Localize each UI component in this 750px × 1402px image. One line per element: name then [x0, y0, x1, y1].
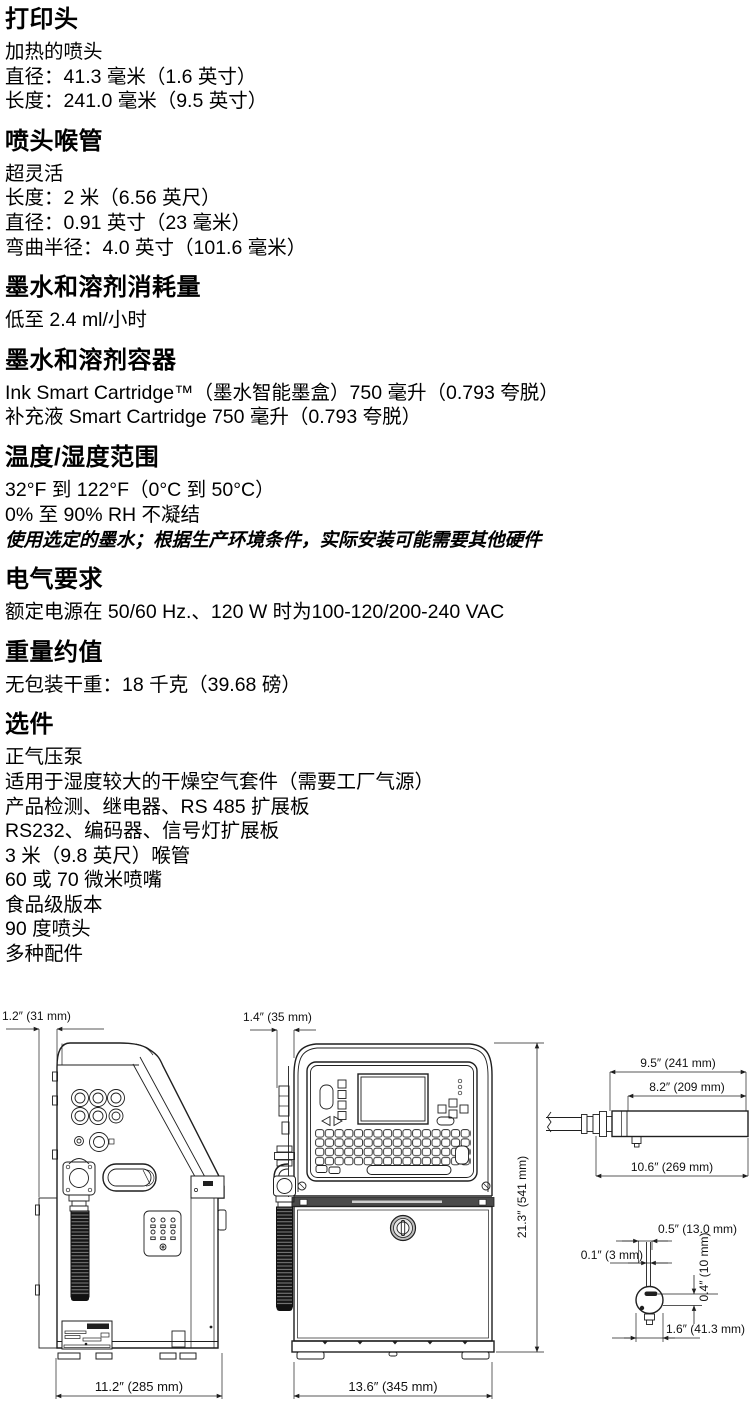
spec-line: 弯曲半径：4.0 英寸（101.6 毫米） — [5, 236, 746, 261]
section-containers: 墨水和溶剂容器 Ink Smart Cartridge™（墨水智能墨盒）750 … — [5, 347, 746, 430]
dimension-label: 8.2″ (209 mm) — [649, 1080, 725, 1094]
spec-line: 产品检测、继电器、RS 485 扩展板 — [5, 795, 746, 820]
display-screen — [358, 1074, 428, 1124]
section-environment: 温度/湿度范围 32°F 到 122°F（0°C 到 50°C） 0% 至 90… — [5, 444, 746, 552]
side-handle — [103, 1164, 156, 1191]
printhead-side-view-drawing: 9.5″ (241 mm) 8.2″ (209 mm) 10.6″ (269 m… — [546, 1056, 748, 1176]
spec-line: 直径：0.91 英寸（23 毫米） — [5, 211, 746, 236]
spec-line: 加热的喷头 — [5, 40, 746, 65]
spec-footnote: 使用选定的墨水；根据生产环境条件，实际安装可能需要其他硬件 — [5, 527, 746, 552]
spec-line: RS232、编码器、信号灯扩展板 — [5, 819, 746, 844]
spec-line: 正气压泵 — [5, 745, 746, 770]
spec-line: 超灵活 — [5, 162, 746, 187]
dimension-label: 21.3″ (541 mm) — [515, 1156, 529, 1238]
dimension-label: 1.2″ (31 mm) — [2, 1009, 71, 1023]
status-led — [458, 1079, 462, 1083]
side-umbilical-gland — [63, 1159, 95, 1302]
spec-line: 长度：241.0 毫米（9.5 英寸） — [5, 89, 746, 114]
arrow-left-key — [322, 1117, 330, 1126]
printhead-end-view-drawing: 0.5″ (13.0 mm) 0.1″ (3 mm) 0.4″ (10 mm) … — [581, 1222, 745, 1342]
section-heading: 温度/湿度范围 — [5, 444, 746, 471]
panel-screws — [298, 1182, 490, 1190]
section-umbilical: 喷头喉管 超灵活 长度：2 米（6.56 英尺） 直径：0.91 英寸（23 毫… — [5, 128, 746, 260]
section-heading: 墨水和溶剂容器 — [5, 347, 746, 374]
printer-front-view-drawing: 1.4″ (35 mm) — [243, 1010, 544, 1399]
section-electrical: 电气要求 额定电源在 50/60 Hz.、120 W 时为100-120/200… — [5, 566, 746, 625]
space-bar — [367, 1166, 451, 1175]
technical-drawings: 1.2″ (31 mm) — [0, 1000, 750, 1402]
dimension-label: 9.5″ (241 mm) — [640, 1056, 716, 1070]
spec-line: 低至 2.4 ml/小时 — [5, 308, 746, 333]
printhead-end-face — [636, 1287, 663, 1314]
dimension-drawings-svg: 1.2″ (31 mm) — [0, 1000, 750, 1402]
status-led — [458, 1091, 462, 1095]
front-left-umbilical — [274, 1066, 296, 1311]
dimension-label: 0.4″ (10 mm) — [697, 1233, 711, 1302]
status-led — [458, 1085, 462, 1089]
spec-line: 长度：2 米（6.56 英尺） — [5, 186, 746, 211]
spec-line: 适用于湿度较大的干燥空气套件（需要工厂气源） — [5, 770, 746, 795]
spec-line: 补充液 Smart Cartridge 750 毫升（0.793 夸脱） — [5, 405, 746, 430]
dimension-label: 1.6″ (41.3 mm) — [666, 1322, 745, 1336]
spec-sheet-page: { "document": { "ink_color": "#1f1f1f", … — [0, 0, 750, 1402]
cabinet-lock — [391, 1216, 416, 1241]
spec-line: 直径：41.3 毫米（1.6 英寸） — [5, 65, 746, 90]
section-options: 选件 正气压泵 适用于湿度较大的干燥空气套件（需要工厂气源） 产品检测、继电器、… — [5, 711, 746, 966]
side-label-plate — [144, 1211, 181, 1256]
spec-line: 0% 至 90% RH 不凝结 — [5, 503, 746, 528]
side-bottom-panel — [62, 1321, 185, 1349]
section-heading: 打印头 — [5, 6, 746, 33]
section-consumption: 墨水和溶剂消耗量 低至 2.4 ml/小时 — [5, 274, 746, 333]
section-heading: 喷头喉管 — [5, 128, 746, 155]
printer-side-view-drawing: 1.2″ (31 mm) — [2, 1009, 226, 1399]
dimension-label: 1.4″ (35 mm) — [243, 1010, 312, 1024]
spec-line: 无包装干重：18 千克（39.68 磅） — [5, 673, 746, 698]
section-printhead: 打印头 加热的喷头 直径：41.3 毫米（1.6 英寸） 长度：241.0 毫米… — [5, 6, 746, 114]
spec-line: 食品级版本 — [5, 893, 746, 918]
spec-text-block: 打印头 加热的喷头 直径：41.3 毫米（1.6 英寸） 长度：241.0 毫米… — [5, 4, 746, 967]
control-panel — [298, 1062, 490, 1190]
spec-line: Ink Smart Cartridge™（墨水智能墨盒）750 毫升（0.793… — [5, 381, 746, 406]
dimension-label: 10.6″ (269 mm) — [631, 1160, 713, 1174]
dimension-label: 13.6″ (345 mm) — [348, 1379, 437, 1394]
section-heading: 电气要求 — [5, 566, 746, 593]
section-heading: 重量约值 — [5, 639, 746, 666]
section-weight: 重量约值 无包装干重：18 千克（39.68 磅） — [5, 639, 746, 698]
dimension-label: 11.2″ (285 mm) — [95, 1379, 183, 1394]
section-heading: 墨水和溶剂消耗量 — [5, 274, 746, 301]
spec-line: 32°F 到 122°F（0°C 到 50°C） — [5, 478, 746, 503]
spec-line: 额定电源在 50/60 Hz.、120 W 时为100-120/200-240 … — [5, 600, 746, 625]
dimension-label: 0.1″ (3 mm) — [581, 1248, 643, 1262]
spec-line: 多种配件 — [5, 942, 746, 967]
side-connector-ports — [72, 1090, 125, 1152]
panel-button — [320, 1085, 333, 1109]
section-heading: 选件 — [5, 711, 746, 738]
spec-line: 60 或 70 微米喷嘴 — [5, 868, 746, 893]
keyboard — [315, 1129, 471, 1175]
printhead-body — [612, 1111, 748, 1137]
spec-line: 3 米（9.8 英尺）喉管 — [5, 844, 746, 869]
spec-line: 90 度喷头 — [5, 917, 746, 942]
